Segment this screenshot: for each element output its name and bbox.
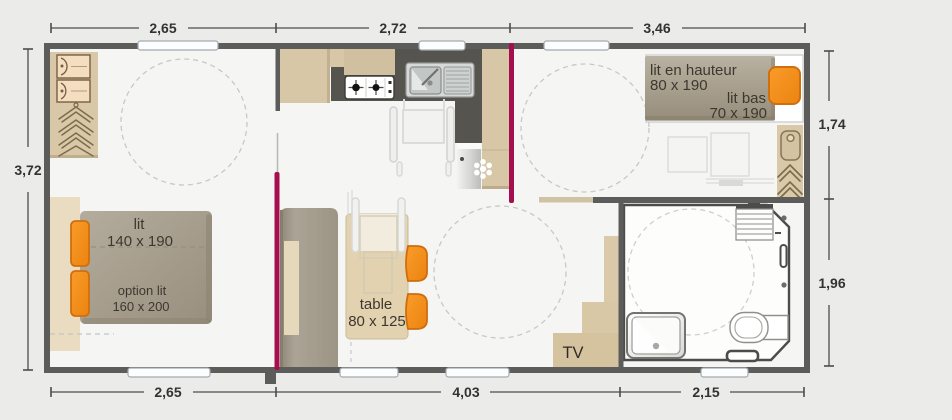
svg-text:4,03: 4,03 <box>452 384 479 400</box>
svg-text:table: table <box>360 296 393 313</box>
svg-text:3,46: 3,46 <box>643 20 670 36</box>
svg-text:80 x 125: 80 x 125 <box>348 313 406 330</box>
svg-text:2,72: 2,72 <box>379 20 406 36</box>
svg-text:70 x 190: 70 x 190 <box>709 105 767 122</box>
svg-text:1,96: 1,96 <box>818 275 845 291</box>
svg-text:2,15: 2,15 <box>692 384 719 400</box>
svg-text:2,65: 2,65 <box>149 20 176 36</box>
svg-text:TV: TV <box>562 344 583 362</box>
svg-text:2,65: 2,65 <box>154 384 181 400</box>
svg-text:option lit: option lit <box>118 283 167 298</box>
svg-text:140 x 190: 140 x 190 <box>107 233 173 250</box>
svg-text:1,74: 1,74 <box>818 116 845 132</box>
svg-text:lit: lit <box>134 216 146 233</box>
svg-text:80 x 190: 80 x 190 <box>650 77 708 94</box>
svg-text:3,72: 3,72 <box>14 162 41 178</box>
svg-text:160 x 200: 160 x 200 <box>112 299 169 314</box>
